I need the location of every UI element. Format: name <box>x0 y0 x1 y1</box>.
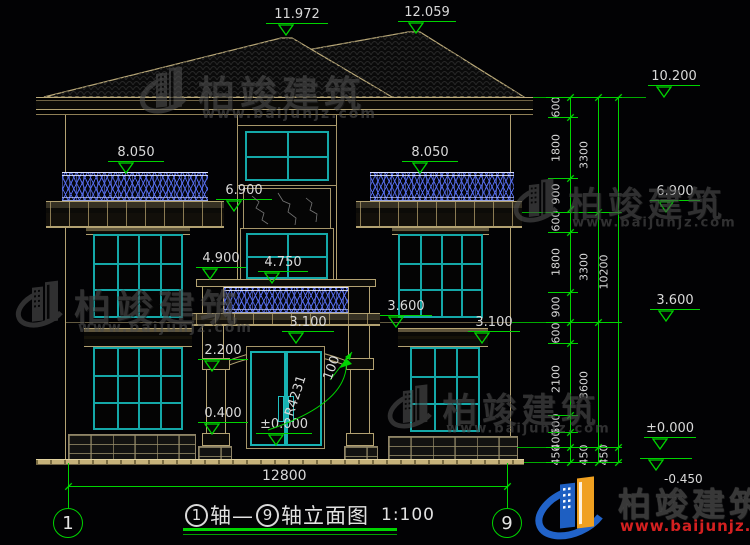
brand-logo-icon <box>532 472 614 545</box>
watermark-4: 柏竣建筑www.baijunjz.com <box>386 380 630 442</box>
watermarks-layer: 柏竣建筑www.baijunjz.com柏竣建筑www.baijunjz.com… <box>0 0 750 545</box>
watermark-2: 柏竣建筑www.baijunjz.com <box>512 174 750 236</box>
watermark-logo-icon <box>386 380 439 438</box>
brand-url: www.baijunjz.com <box>620 517 750 535</box>
watermark-logo-icon <box>512 174 565 232</box>
brand-logo-block: 柏竣建筑 www.baijunjz.com <box>530 470 750 545</box>
cad-elevation-canvas: 12800 1 9 1 轴— 9 轴立面图 1:100 11.97212.059… <box>0 0 750 545</box>
watermark-url: www.baijunjz.com <box>78 320 253 336</box>
watermark-logo-icon <box>14 276 70 338</box>
watermark-url: www.baijunjz.com <box>202 106 377 122</box>
watermark-1: 柏竣建筑www.baijunjz.com <box>138 62 398 128</box>
watermark-3: 柏竣建筑www.baijunjz.com <box>14 276 274 342</box>
watermark-url: www.baijunjz.com <box>572 215 737 230</box>
watermark-url: www.baijunjz.com <box>446 421 611 436</box>
watermark-logo-icon <box>138 62 194 124</box>
